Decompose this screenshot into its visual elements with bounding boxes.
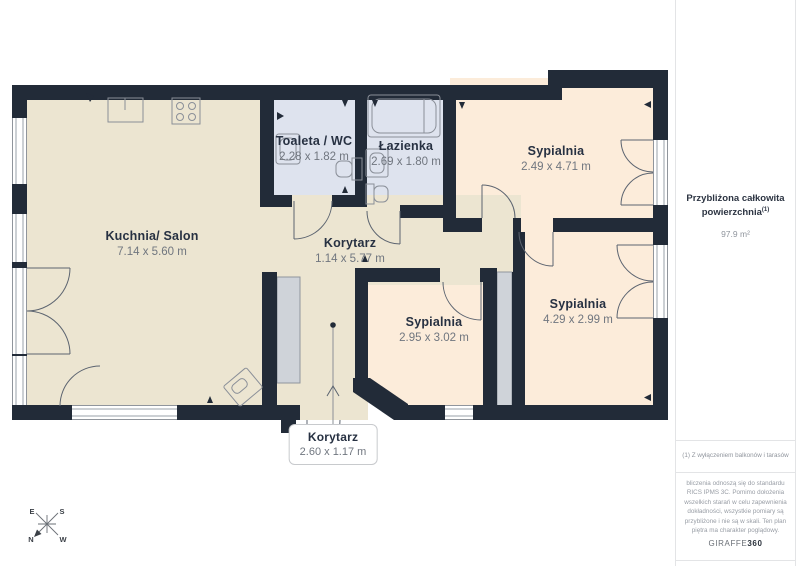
window-left-3 <box>13 356 27 405</box>
compass-e: E <box>29 507 34 516</box>
corridor-wardrobe <box>277 277 300 383</box>
wall-shaft-left <box>483 272 497 407</box>
total-area-title-line1: Przybliżona całkowita <box>676 192 795 206</box>
wall-top-ne <box>548 70 668 88</box>
wall-sw-north-a <box>362 268 440 282</box>
room-label-bathroom: Łazienka 2.69 x 1.80 m <box>371 139 441 168</box>
disclaimer-text: bliczenia odnoszą się do standardu RICS … <box>683 479 788 536</box>
wall-corridor-right <box>355 268 368 383</box>
french-window-se <box>654 245 668 318</box>
room-dims: 4.29 x 2.99 m <box>543 314 613 326</box>
area-footnote: (1) Z wyłączeniem balkonów i tarasów <box>676 452 795 459</box>
area-footnote-marker: (1) <box>762 207 769 213</box>
floor-plan-page: E S N W Kuchnia/ Salon 7.14 x 5.60 m Toa… <box>0 0 800 566</box>
room-name: Sypialnia <box>521 144 591 158</box>
wall-bed-c <box>553 218 668 232</box>
sidebar-divider <box>676 472 795 473</box>
french-door-left <box>13 268 27 354</box>
room-label-bedroom-ne: Sypialnia 2.49 x 4.71 m <box>521 144 591 173</box>
duct-shaft <box>497 272 512 407</box>
leader-dot <box>330 322 336 328</box>
wall-se-west <box>513 232 525 277</box>
window-left-2 <box>13 214 27 262</box>
room-label-bedroom-se: Sypialnia 4.29 x 2.99 m <box>543 297 613 326</box>
french-window-ne <box>654 140 668 205</box>
giraffe360-logo: GIRAFFE360 <box>676 539 795 548</box>
wall-sw-north-b <box>480 268 497 282</box>
room-name: Łazienka <box>371 139 441 153</box>
room-name: Korytarz <box>300 430 367 444</box>
wall-bath-right <box>443 85 456 232</box>
wall-kitchen-corridor <box>262 272 277 405</box>
room-dims: 2.28 x 1.82 m <box>276 151 352 163</box>
window-left-1 <box>13 118 27 184</box>
room-dims: 7.14 x 5.60 m <box>105 246 198 258</box>
sidebar-divider <box>676 560 795 561</box>
sidebar: Przybliżona całkowita powierzchnia(1) 97… <box>675 0 796 566</box>
window-bottom-se <box>445 406 473 420</box>
compass-n: N <box>28 535 33 544</box>
compass-icon: E S N W <box>28 507 67 544</box>
compass-w: W <box>59 535 67 544</box>
wall-bed-a <box>443 218 482 232</box>
room-dims: 2.69 x 1.80 m <box>371 156 441 168</box>
room-name: Sypialnia <box>399 315 469 329</box>
room-dims: 2.49 x 4.71 m <box>521 161 591 173</box>
room-label-kitchen: Kuchnia/ Salon 7.14 x 5.60 m <box>105 229 198 258</box>
wall-shaft-right <box>512 272 525 407</box>
room-name: Korytarz <box>315 236 385 250</box>
wall-kitchen-wc <box>260 100 274 195</box>
wall-wc-bottom-a <box>260 195 292 207</box>
room-label-toilet: Toaleta / WC 2.28 x 1.82 m <box>276 134 352 163</box>
wall-top <box>12 85 562 100</box>
room-name: Toaleta / WC <box>276 134 352 148</box>
wall-bed-post <box>513 218 521 232</box>
total-area-title-line2: powierzchnia(1) <box>676 206 795 220</box>
room-label-bedroom-sw: Sypialnia 2.95 x 3.02 m <box>399 315 469 344</box>
total-area-value: 97.9 m² <box>676 229 795 239</box>
total-area-title: Przybliżona całkowita powierzchnia(1) <box>676 192 795 221</box>
room-name: Sypialnia <box>543 297 613 311</box>
compass-s: S <box>59 507 64 516</box>
window-bottom-kitchen <box>72 406 177 420</box>
room-dims: 1.14 x 5.77 m <box>315 253 385 265</box>
room-label-corridor: Korytarz 1.14 x 5.77 m <box>315 236 385 265</box>
wall-bottom-right <box>400 405 668 420</box>
sidebar-divider <box>676 440 795 441</box>
total-area-block: Przybliżona całkowita powierzchnia(1) 97… <box>676 192 795 239</box>
entry-corridor-label-box: Korytarz 2.60 x 1.17 m <box>289 424 378 465</box>
room-name: Kuchnia/ Salon <box>105 229 198 243</box>
room-dims: 2.95 x 3.02 m <box>399 332 469 344</box>
wall-wc-bath <box>355 85 367 207</box>
wall-bath-bottom <box>400 205 443 218</box>
room-dims: 2.60 x 1.17 m <box>300 446 367 458</box>
